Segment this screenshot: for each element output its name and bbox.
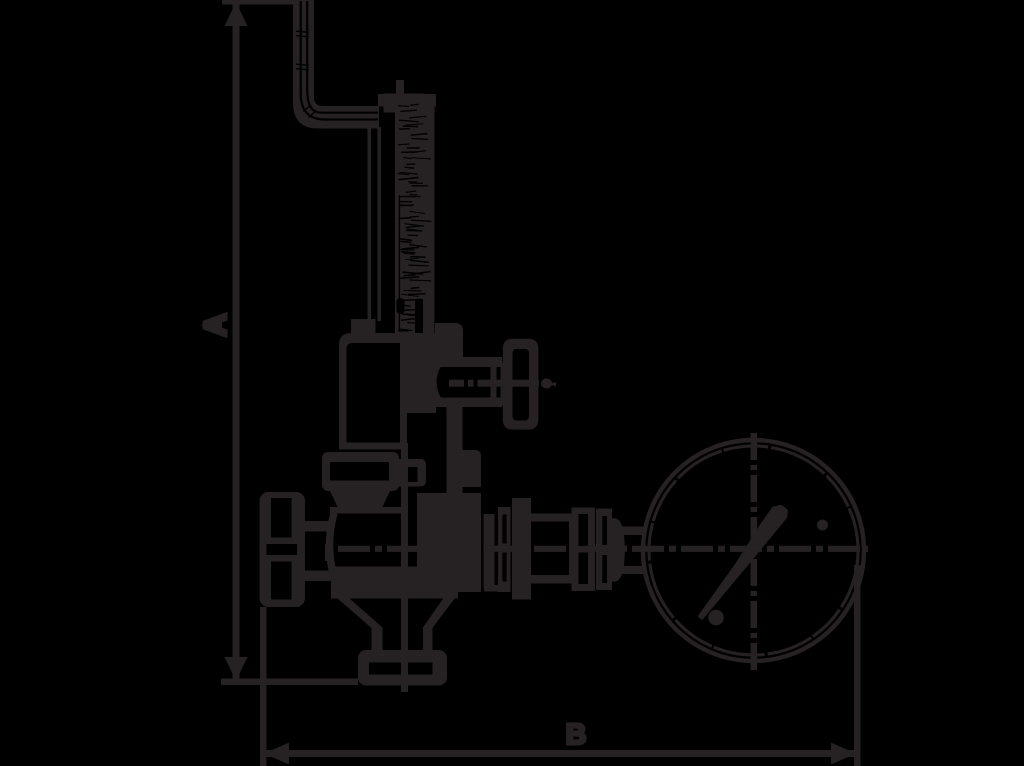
svg-text:A: A bbox=[198, 314, 233, 336]
svg-text:B: B bbox=[566, 719, 587, 751]
